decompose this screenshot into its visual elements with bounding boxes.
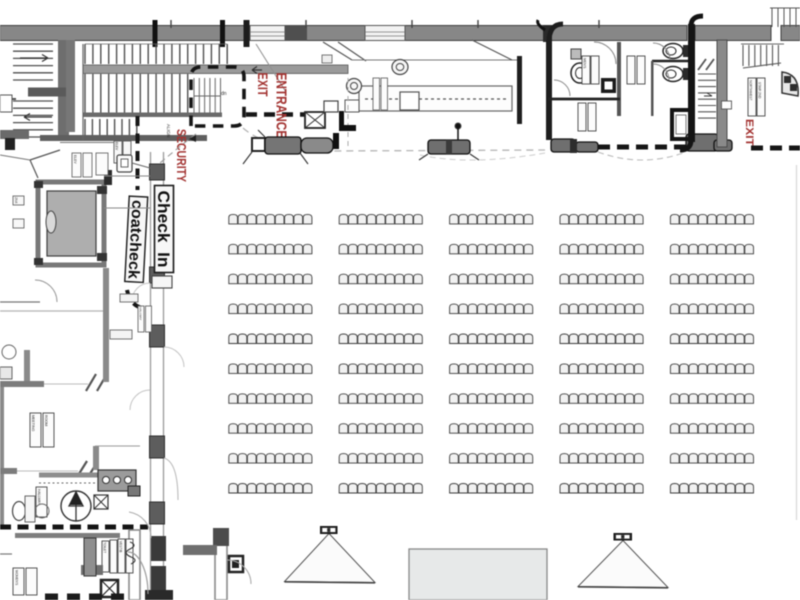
svg-text:WOMEN'S: WOMEN'S <box>15 570 19 585</box>
svg-text:STAIR 2ND: STAIR 2ND <box>758 82 762 99</box>
svg-text:HALLWAY: HALLWAY <box>139 307 143 320</box>
svg-text:2N4: 2N4 <box>14 197 18 203</box>
svg-text:EXIT: EXIT <box>743 119 755 146</box>
svg-text:dn: dn <box>221 91 227 97</box>
svg-text:TOILET: TOILET <box>103 542 107 553</box>
svg-text:SECURITY: SECURITY <box>174 129 189 182</box>
svg-text:VESTIB: VESTIB <box>119 541 123 552</box>
svg-text:Check In: Check In <box>154 191 173 268</box>
svg-text:EXIT: EXIT <box>255 73 271 97</box>
svg-text:NORTHWEST: NORTHWEST <box>749 80 753 101</box>
svg-text:ROOM: ROOM <box>44 415 48 426</box>
svg-text:ENTRANCE/: ENTRANCE/ <box>273 73 290 143</box>
svg-text:ALIGN: ALIGN <box>166 124 171 138</box>
svg-text:ELEV: ELEV <box>73 155 77 164</box>
svg-text:HALLWAY: HALLWAY <box>37 489 41 505</box>
svg-text:MEETING: MEETING <box>31 415 35 432</box>
svg-text:MEN'S: MEN'S <box>583 58 587 69</box>
svg-text:ELEV: ELEV <box>115 142 119 151</box>
